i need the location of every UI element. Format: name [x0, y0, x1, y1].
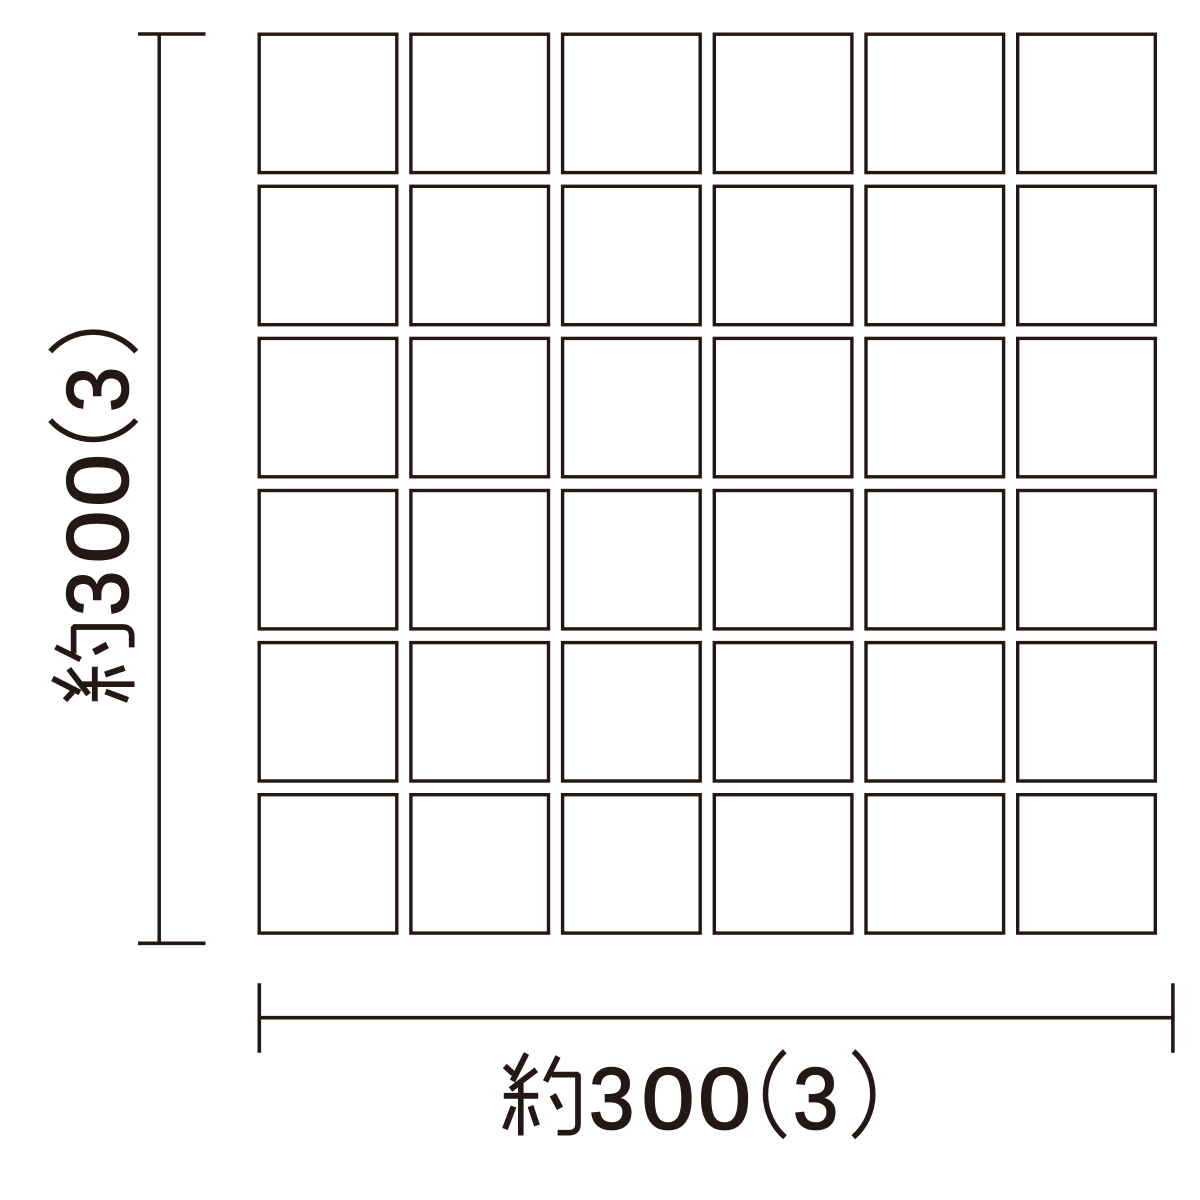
svg-text:3: 3 [48, 571, 146, 616]
svg-text:0: 0 [49, 511, 147, 564]
svg-text:3: 3 [589, 1049, 634, 1147]
svg-text:0: 0 [49, 454, 147, 507]
svg-text:0: 0 [698, 1050, 751, 1148]
svg-text:0: 0 [642, 1050, 695, 1148]
svg-text:3: 3 [793, 1049, 838, 1147]
svg-text:3: 3 [48, 367, 146, 412]
